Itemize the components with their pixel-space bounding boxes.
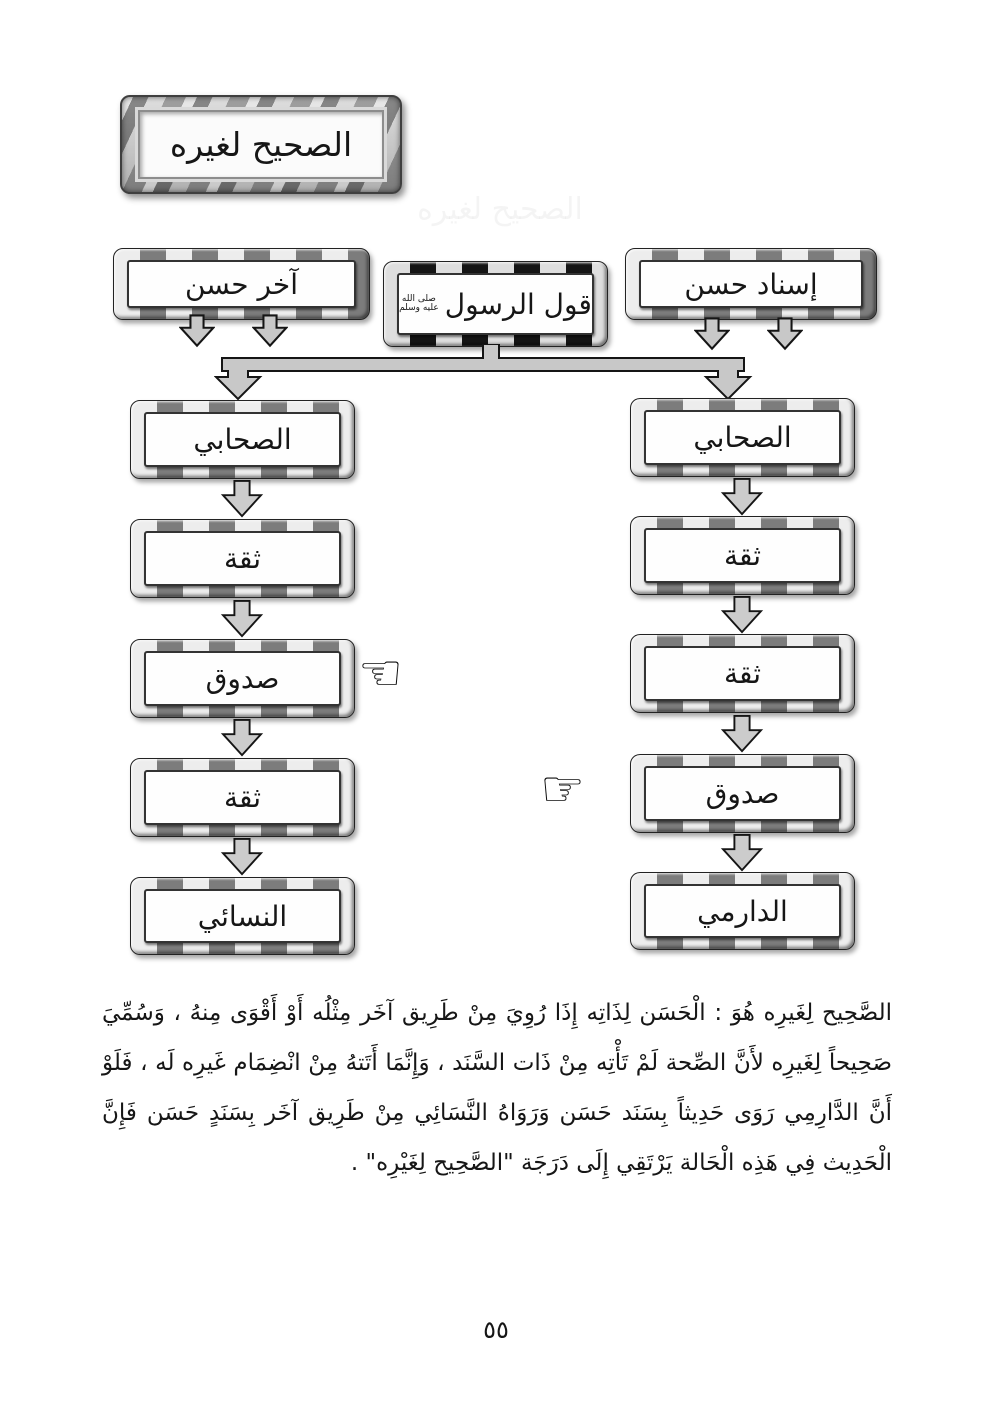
down-arrow-icon <box>179 314 215 348</box>
title-banner-label: الصحيح لغيره <box>170 125 352 164</box>
chain-box-saduq-left: صدوق <box>130 639 355 718</box>
pbuh-line: عليه وسلم <box>399 304 439 313</box>
chain-box-hasan-isnad: إسناد حسن <box>625 248 877 320</box>
chain-box-label: ثقة <box>724 657 761 690</box>
paragraph-line: أَنَّ الدَّارِمِي رَوَى حَدِيثاً بِسَنَد… <box>102 1088 892 1138</box>
definition-paragraph: الصَّحِيح لِغَيرِه هُوَ : الْحَسَن لِذَا… <box>102 988 892 1188</box>
chain-box-label: ثقة <box>224 542 261 575</box>
page-number: ٥٥ <box>466 1316 526 1344</box>
chain-box-label: النسائي <box>198 900 287 933</box>
chain-box-label: الصحابي <box>193 423 291 456</box>
chain-box-label: الصحابي <box>693 421 791 454</box>
chain-box: الصحابي <box>630 398 855 477</box>
chain-box-saduq-right: صدوق <box>630 754 855 833</box>
chain-box: ثقة <box>130 758 355 837</box>
down-arrow-icon <box>720 478 764 516</box>
title-banner-inner: الصحيح لغيره <box>138 110 384 179</box>
chain-box-label: الدارمي <box>697 895 788 928</box>
paragraph-line: الْحَدِيث فِي هَذِه الْحَالة يَرْتَقِي إ… <box>102 1138 892 1188</box>
down-arrow-icon <box>767 317 803 351</box>
chain-box-prophet-saying: قول الرسول صلى الله عليه وسلم <box>383 261 608 347</box>
chain-box-label: قول الرسول <box>445 288 592 321</box>
chain-box-label: آخر حسن <box>185 268 298 301</box>
down-arrow-icon <box>220 719 264 757</box>
chain-box: الصحابي <box>130 400 355 479</box>
chain-box-darimi: الدارمي <box>630 872 855 950</box>
pointing-hand-right-icon: ☞ <box>540 764 585 814</box>
paragraph-line: صَحِيحاً لِغَيرِه لأَنَّ الصِّحة لَمْ تَ… <box>102 1038 892 1088</box>
down-arrow-icon <box>220 480 264 518</box>
down-arrow-icon <box>720 834 764 872</box>
ghost-bleed-text: الصحيح لغيره <box>400 192 600 227</box>
down-arrow-icon <box>220 600 264 638</box>
chain-box: ثقة <box>630 516 855 595</box>
down-arrow-icon <box>720 596 764 634</box>
chain-box-nasai: النسائي <box>130 877 355 955</box>
chain-box-label: ثقة <box>724 539 761 572</box>
chain-box-label: صدوق <box>206 662 280 695</box>
title-banner: الصحيح لغيره <box>120 95 402 194</box>
chain-box: ثقة <box>130 519 355 598</box>
chain-box-label: ثقة <box>224 781 261 814</box>
pointing-hand-left-icon: ☜ <box>358 648 403 698</box>
chain-box-label: إسناد حسن <box>684 268 817 301</box>
paragraph-line: الصَّحِيح لِغَيرِه هُوَ : الْحَسَن لِذَا… <box>102 988 892 1038</box>
book-page: الصحيح لغيره الصحيح لغيره آخر حسن قول ال… <box>0 0 992 1403</box>
down-arrow-icon <box>720 715 764 753</box>
down-arrow-icon <box>252 314 288 348</box>
branch-connector <box>214 344 754 404</box>
down-arrow-icon <box>220 838 264 876</box>
chain-box-other-hasan: آخر حسن <box>113 248 370 320</box>
pbuh-honorific: صلى الله عليه وسلم <box>399 295 439 314</box>
chain-box-label: صدوق <box>706 777 780 810</box>
chain-box: ثقة <box>630 634 855 713</box>
